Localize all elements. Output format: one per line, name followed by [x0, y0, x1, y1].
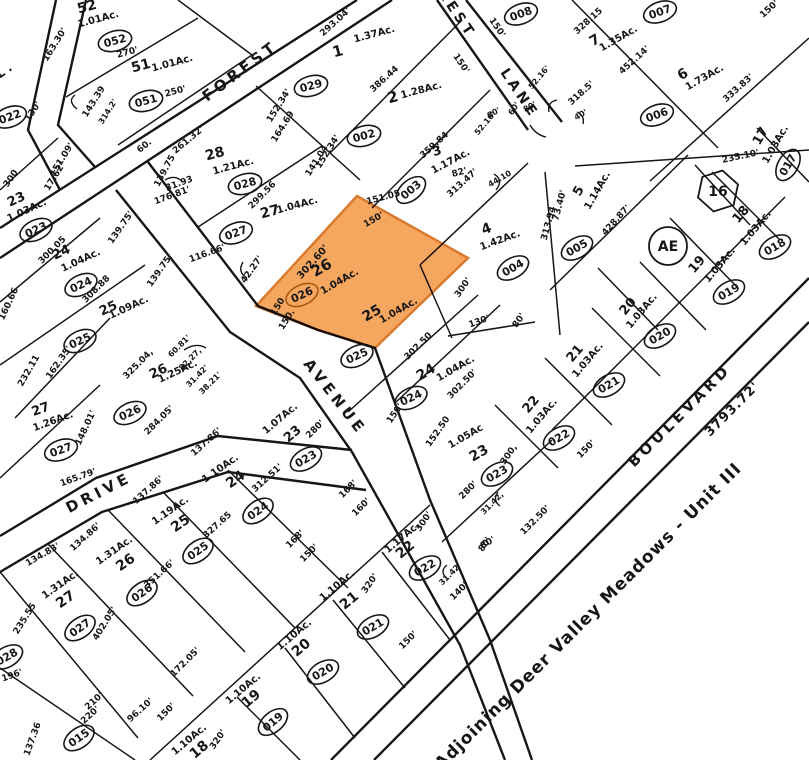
cul-de-sac-bulb — [523, 121, 575, 173]
plat-map-stage: 16AE052051022023024025026027029002003028… — [0, 0, 809, 760]
ae-circle-label: AE — [658, 239, 678, 255]
plat-map-svg: 16AE052051022023024025026027029002003028… — [0, 0, 809, 760]
hexagon-label: 16 — [708, 184, 727, 200]
